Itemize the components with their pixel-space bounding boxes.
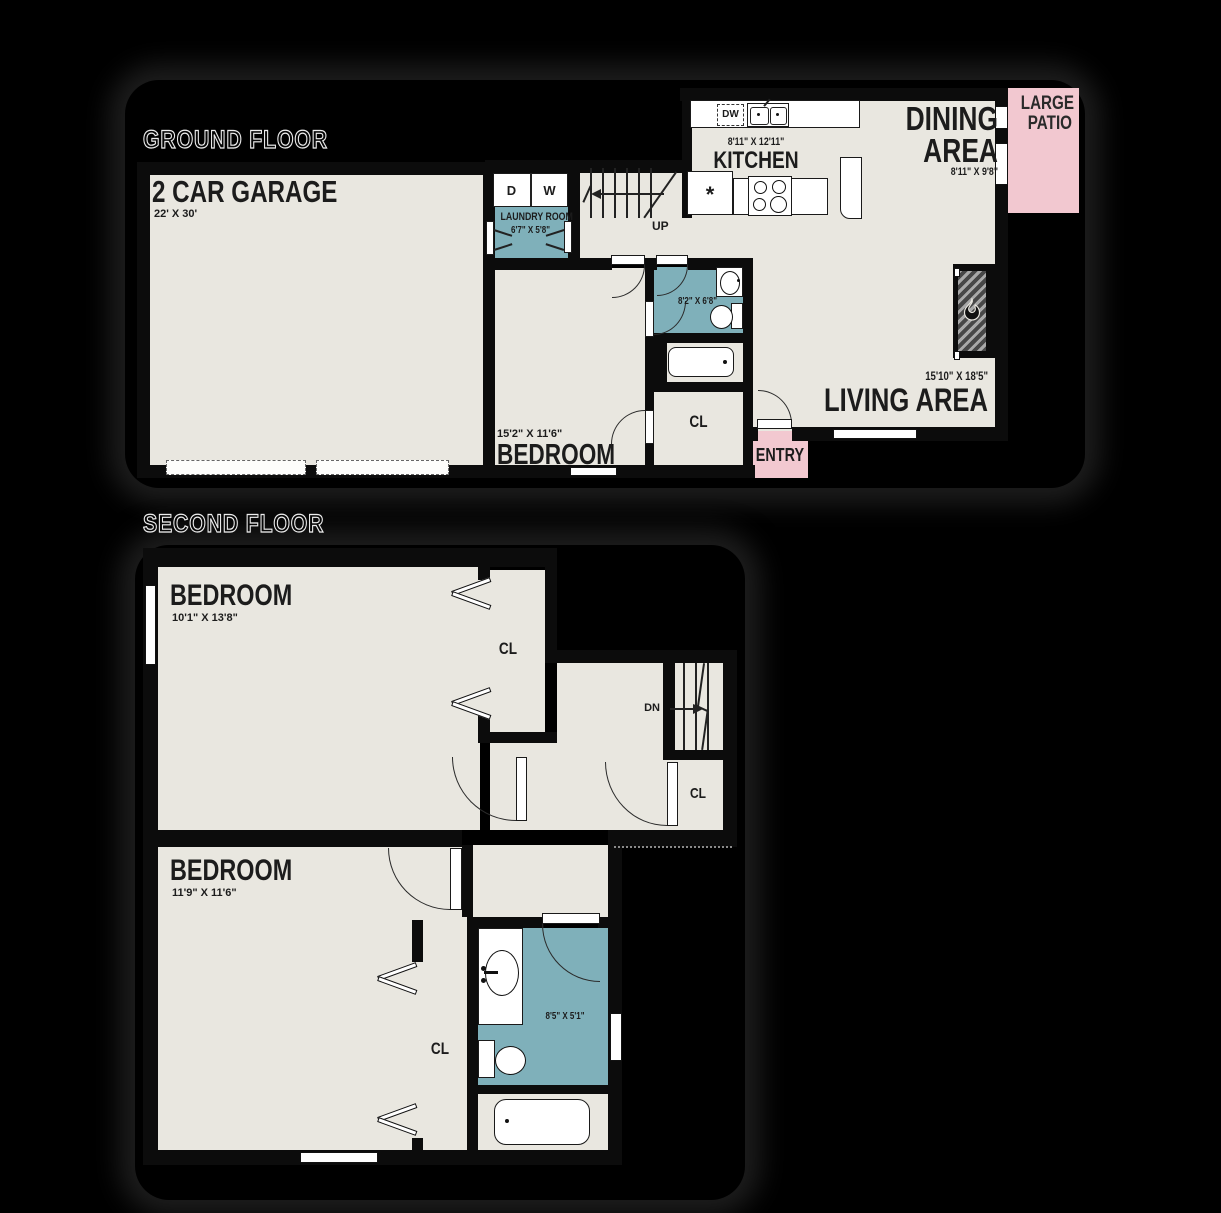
stair-line bbox=[707, 663, 709, 750]
dining-label-2: AREA bbox=[880, 134, 998, 167]
sink-basin bbox=[770, 107, 787, 125]
sink-drain bbox=[757, 113, 760, 116]
wall-segment bbox=[462, 845, 473, 917]
garage-label: 2 CAR GARAGE bbox=[152, 176, 337, 207]
refrigerator-symbol: * bbox=[687, 184, 733, 206]
sf-bathroom-dims: 8'5" X 5'1" bbox=[533, 1012, 597, 1022]
sf-bedroom2-label: BEDROOM bbox=[170, 856, 292, 886]
laundry-bifold-jamb bbox=[564, 221, 572, 253]
stairs-up-label: UP bbox=[652, 220, 669, 232]
patio-label-2: PATIO bbox=[1021, 114, 1072, 133]
gf-bathroom-hall-door bbox=[656, 255, 688, 265]
gf-closet-label: CL bbox=[663, 413, 734, 430]
wall-segment bbox=[467, 917, 478, 1150]
entry-label: ENTRY bbox=[756, 446, 802, 464]
gf-bedroom-label: BEDROOM bbox=[497, 441, 615, 470]
sink-drain bbox=[776, 113, 779, 116]
wall-segment bbox=[545, 548, 557, 663]
sf-vestibule-floor bbox=[473, 845, 608, 917]
wall-segment bbox=[645, 268, 654, 303]
living-label: LIVING AREA bbox=[790, 384, 988, 416]
wall-segment bbox=[723, 650, 737, 845]
wall-segment bbox=[663, 750, 737, 760]
stove-burner bbox=[753, 198, 766, 211]
wall-segment bbox=[467, 917, 544, 928]
garage-dims: 22' X 30' bbox=[154, 209, 197, 220]
counter-peninsula bbox=[840, 157, 862, 219]
gf-toilet-bowl bbox=[710, 305, 733, 329]
wall-segment bbox=[743, 258, 753, 478]
stair-line bbox=[683, 663, 685, 750]
sf-closet3-label: CL bbox=[428, 1040, 452, 1057]
wall-segment bbox=[645, 392, 654, 410]
sf-bedroom2-dims: 11'9" X 11'6" bbox=[172, 888, 237, 899]
sf-bathroom-window bbox=[610, 1013, 622, 1061]
sf-closet1-label: CL bbox=[492, 640, 524, 657]
fireplace-notch bbox=[954, 268, 960, 277]
wall-segment bbox=[143, 830, 462, 847]
ground-floor-title: GROUND FLOOR bbox=[143, 126, 328, 155]
stairs-dn-label: DN bbox=[622, 703, 660, 714]
wall-segment bbox=[608, 830, 737, 847]
laundry-bifold-jamb bbox=[486, 221, 494, 255]
dryer-label: D bbox=[493, 184, 530, 197]
garage-floor bbox=[150, 175, 483, 465]
patio-label-1: LARGE bbox=[1021, 94, 1072, 113]
wall-segment bbox=[478, 1085, 608, 1094]
floor-plan: GROUND FLOOR D W bbox=[0, 0, 1221, 1213]
wall-segment bbox=[485, 258, 612, 270]
sf-bath-faucet-knob bbox=[481, 978, 486, 983]
entry-door bbox=[757, 419, 792, 429]
fireplace-notch bbox=[954, 351, 960, 360]
gf-bath-sink bbox=[720, 271, 740, 295]
wall-segment bbox=[143, 1150, 622, 1165]
garage-door bbox=[316, 460, 449, 475]
stove bbox=[748, 176, 792, 216]
sf-bedroom1-door bbox=[516, 757, 527, 821]
wall-segment bbox=[598, 917, 622, 928]
sf-bedroom1-window bbox=[145, 585, 156, 665]
sf-toilet-bowl bbox=[495, 1046, 526, 1075]
wall-segment bbox=[143, 548, 557, 567]
stairs-up-arrowhead-icon bbox=[591, 189, 601, 199]
wall-segment bbox=[663, 663, 675, 750]
gf-bathroom-dims: 8'2" X 6'8" bbox=[661, 297, 734, 307]
gf-bedroom-door bbox=[611, 255, 645, 265]
flame-icon bbox=[962, 298, 982, 322]
sf-bedroom2-window bbox=[300, 1152, 378, 1163]
washer-label: W bbox=[531, 184, 568, 197]
wall-segment bbox=[645, 444, 654, 465]
gf-tub-drain bbox=[723, 360, 727, 364]
stairs-dn-arrowhead-icon bbox=[693, 704, 703, 714]
hall-living-connector-floor bbox=[685, 218, 750, 263]
sf-bedroom2-door bbox=[450, 848, 462, 910]
wall-segment bbox=[608, 830, 622, 1165]
sf-toilet-tank bbox=[478, 1040, 495, 1078]
stairs-up-arrow bbox=[600, 193, 664, 195]
kitchen-label: KITCHEN bbox=[707, 149, 805, 173]
garage-door bbox=[166, 460, 306, 475]
stove-burner bbox=[754, 181, 767, 194]
wall-segment bbox=[137, 162, 150, 478]
sf-tub-drain bbox=[505, 1119, 509, 1123]
second-floor-title: SECOND FLOOR bbox=[143, 510, 324, 539]
plan-edge-dotted-line bbox=[614, 846, 732, 848]
dining-label-1: DINING bbox=[880, 102, 998, 135]
gf-closet-door bbox=[645, 410, 654, 444]
stove-burner bbox=[772, 180, 786, 194]
wall-segment bbox=[545, 650, 737, 663]
wall-segment bbox=[652, 333, 743, 343]
sf-closet2-label: CL bbox=[686, 786, 710, 801]
sf-bedroom1-dims: 10'1" X 13'8" bbox=[172, 613, 238, 624]
dining-dims: 8'11" X 9'8" bbox=[880, 167, 998, 178]
sf-bath-faucet bbox=[484, 971, 498, 974]
wall-segment bbox=[412, 1138, 423, 1150]
dishwasher-label: DW bbox=[717, 110, 744, 120]
wall-segment bbox=[652, 382, 743, 392]
sf-bathroom-door bbox=[542, 913, 600, 924]
living-window bbox=[833, 429, 917, 439]
sink-basin bbox=[750, 107, 769, 125]
laundry-label: LAUNDRY ROOM bbox=[501, 212, 561, 223]
wall-segment bbox=[483, 162, 495, 478]
wall-segment bbox=[478, 732, 557, 743]
gf-bathroom-bedroom-door bbox=[645, 301, 654, 337]
sf-closet2-door bbox=[667, 762, 678, 826]
wall-segment bbox=[412, 920, 423, 962]
laundry-dims: 6'7" X 5'8" bbox=[501, 226, 561, 236]
stove-burner bbox=[770, 196, 787, 213]
gf-bath-faucet bbox=[737, 279, 740, 282]
living-dims: 15'10" X 18'5" bbox=[830, 370, 988, 382]
sf-bedroom1-label: BEDROOM bbox=[170, 581, 292, 611]
wall-segment bbox=[485, 160, 692, 173]
